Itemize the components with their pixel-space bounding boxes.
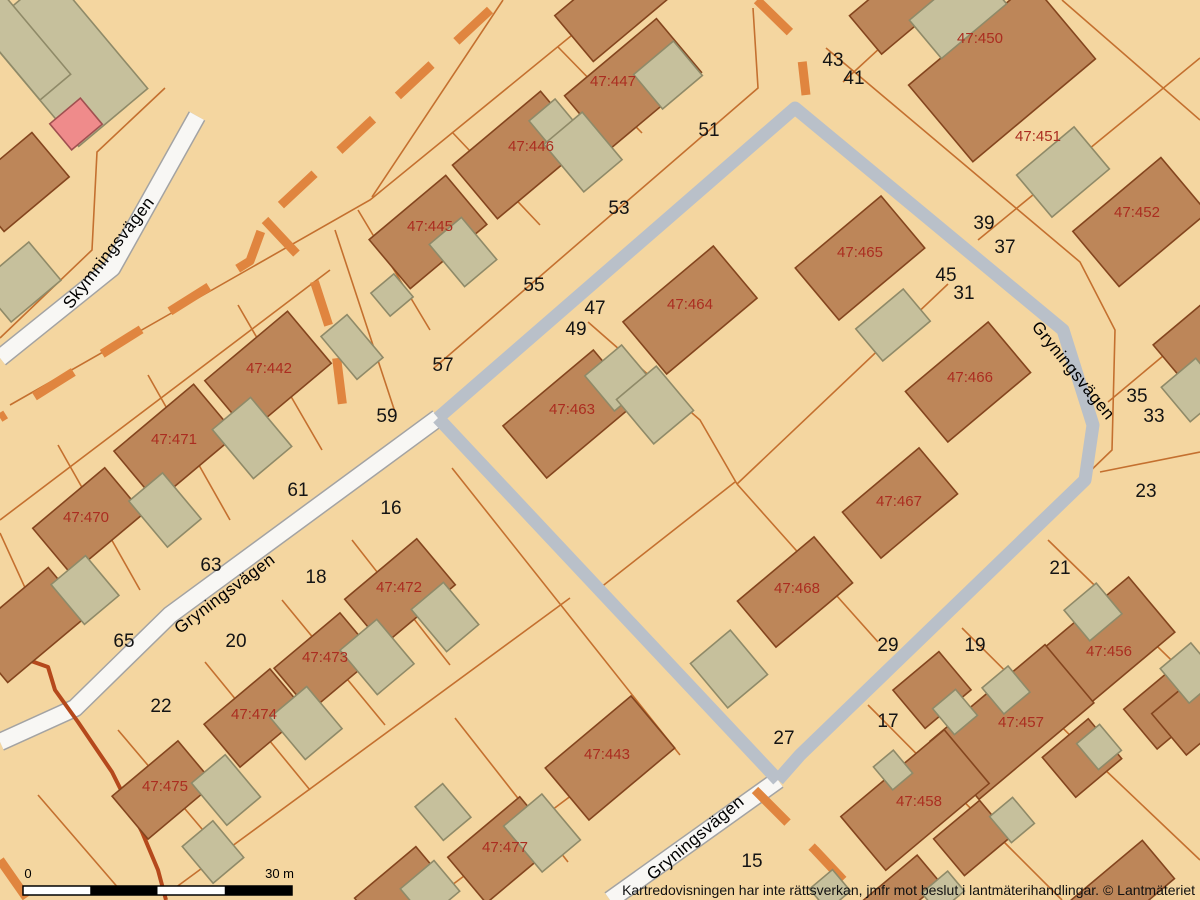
house-number-label: 29 (877, 635, 898, 656)
map-disclaimer: Kartredovisningen har inte rättsverkan, … (622, 882, 1195, 898)
house-number-label: 16 (380, 498, 401, 519)
house-number-label: 53 (608, 198, 629, 219)
house-number-label: 41 (843, 68, 864, 89)
house-number-label: 55 (523, 275, 544, 296)
house-number-label: 61 (287, 480, 308, 501)
property-label: 47:445 (407, 218, 453, 235)
property-label: 47:474 (231, 706, 277, 723)
house-number-label: 22 (150, 696, 171, 717)
scale-bar-segment (225, 886, 292, 895)
scale-label-end: 30 m (265, 866, 294, 881)
house-number-label: 18 (305, 567, 326, 588)
property-label: 47:451 (1015, 128, 1061, 145)
property-label: 47:458 (896, 793, 942, 810)
house-number-label: 35 (1126, 386, 1147, 407)
house-number-label: 43 (822, 50, 843, 71)
house-number-label: 27 (773, 728, 794, 749)
house-number-label: 33 (1143, 406, 1164, 427)
house-number-label: 63 (200, 555, 221, 576)
property-label: 47:446 (508, 138, 554, 155)
property-label: 47:443 (584, 746, 630, 763)
house-number-label: 15 (741, 851, 762, 872)
map-canvas[interactable]: SkymningsvägenGryningsvägenGryningsvägen… (0, 0, 1200, 900)
scale-bar-segment (90, 886, 157, 895)
property-label: 47:463 (549, 401, 595, 418)
house-number-label: 39 (973, 213, 994, 234)
property-label: 47:473 (302, 649, 348, 666)
property-label: 47:452 (1114, 204, 1160, 221)
property-label: 47:456 (1086, 643, 1132, 660)
property-label: 47:450 (957, 30, 1003, 47)
property-label: 47:442 (246, 360, 292, 377)
property-label: 47:467 (876, 493, 922, 510)
property-label: 47:470 (63, 509, 109, 526)
property-label: 47:465 (837, 244, 883, 261)
scale-label-start: 0 (24, 866, 31, 881)
house-number-label: 49 (565, 319, 586, 340)
house-number-label: 23 (1135, 481, 1156, 502)
house-number-label: 21 (1049, 558, 1070, 579)
property-label: 47:468 (774, 580, 820, 597)
property-label: 47:477 (482, 839, 528, 856)
house-number-label: 65 (113, 631, 134, 652)
property-label: 47:466 (947, 369, 993, 386)
house-number-label: 19 (964, 635, 985, 656)
house-number-label: 47 (584, 298, 605, 319)
house-number-label: 31 (953, 283, 974, 304)
map-viewport[interactable]: SkymningsvägenGryningsvägenGryningsvägen… (0, 0, 1200, 900)
property-label: 47:447 (590, 73, 636, 90)
property-label: 47:464 (667, 296, 713, 313)
house-number-label: 59 (376, 406, 397, 427)
property-label: 47:471 (151, 431, 197, 448)
house-number-label: 51 (698, 120, 719, 141)
property-label: 47:472 (376, 579, 422, 596)
house-number-label: 20 (225, 631, 246, 652)
house-number-label: 37 (994, 237, 1015, 258)
property-label: 47:457 (998, 714, 1044, 731)
house-number-label: 17 (877, 711, 898, 732)
property-label: 47:475 (142, 778, 188, 795)
house-number-label: 57 (432, 355, 453, 376)
